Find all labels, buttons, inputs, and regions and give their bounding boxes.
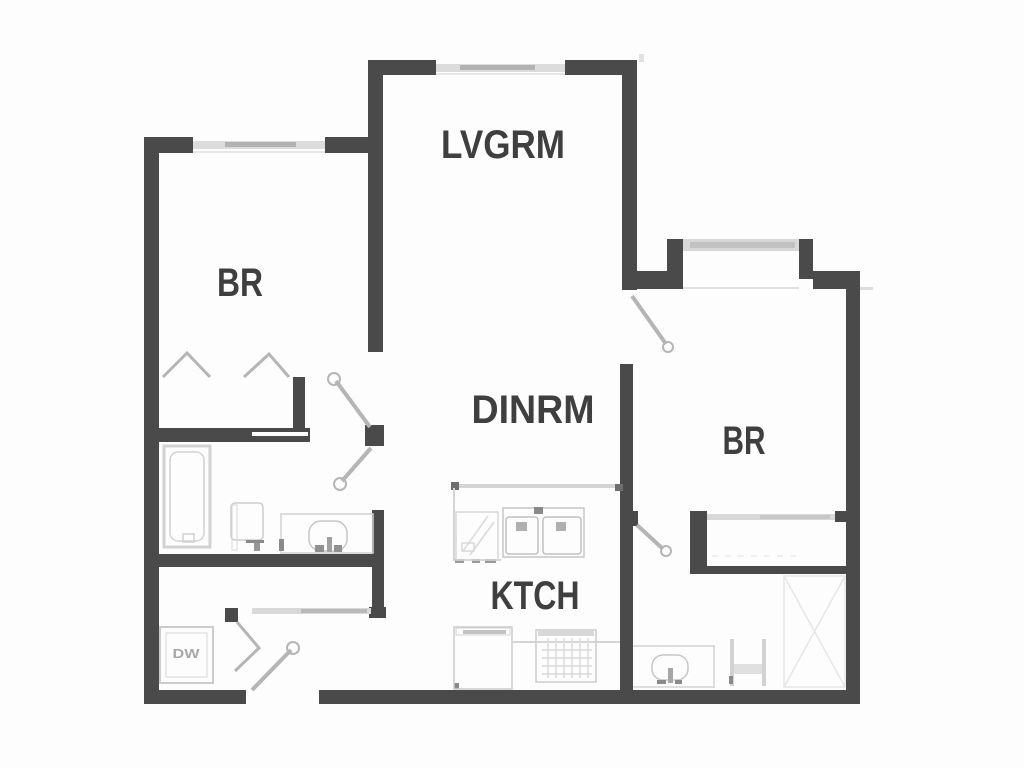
- svg-text:KTCH: KTCH: [491, 574, 580, 618]
- svg-text:DINRM: DINRM: [472, 388, 595, 432]
- svg-text:LVGRM: LVGRM: [441, 123, 565, 167]
- svg-text:BR: BR: [217, 261, 263, 305]
- svg-text:DW: DW: [173, 646, 201, 661]
- svg-text:BR: BR: [723, 419, 766, 463]
